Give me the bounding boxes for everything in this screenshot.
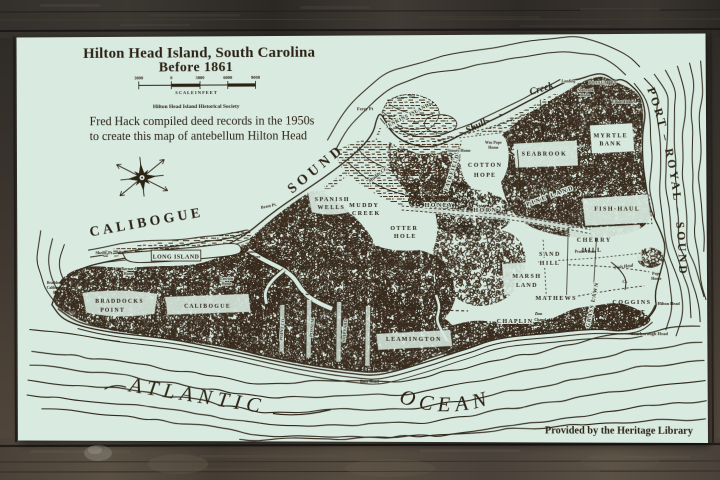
svg-text:Scarborough Head: Scarborough Head: [631, 331, 668, 336]
svg-text:O T T E R: O T T E R: [390, 226, 417, 232]
svg-text:Ferry Pt: Ferry Pt: [357, 106, 374, 111]
svg-text:Stoney Home: Stoney Home: [448, 148, 471, 153]
svg-text:S E A B R O O K: S E A B R O O K: [522, 151, 566, 157]
svg-text:F I S H - H A U L: F I S H - H A U L: [594, 206, 639, 212]
svg-text:6000: 6000: [223, 75, 233, 80]
svg-text:H O P E: H O P E: [474, 173, 495, 179]
svg-text:B R A D D O C K S: B R A D D O C K S: [95, 299, 142, 305]
svg-text:S P A N I S H: S P A N I S H: [315, 197, 349, 203]
svg-text:C O T T O N: C O T T O N: [468, 163, 502, 169]
svg-text:Fred Hack compiled deed record: Fred Hack compiled deed records in the 1…: [90, 113, 315, 128]
svg-text:S A N D: S A N D: [539, 252, 559, 258]
svg-text:Landing: Landing: [164, 244, 181, 249]
svg-text:M A T H E W S: M A T H E W S: [535, 296, 576, 302]
svg-text:M U D D Y: M U D D Y: [349, 203, 378, 209]
svg-text:3000: 3000: [134, 75, 144, 80]
svg-text:to create this map of antebell: to create this map of antebellum Hilton …: [90, 128, 307, 143]
svg-text:C H A P L I N: C H A P L I N: [497, 319, 533, 325]
svg-text:9000: 9000: [251, 75, 261, 80]
svg-text:P O I N T: P O I N T: [620, 310, 645, 316]
svg-text:Home: Home: [488, 145, 499, 150]
svg-text:C A L I B O G U E: C A L I B O G U E: [184, 304, 230, 310]
svg-text:Bass Head: Bass Head: [360, 379, 379, 384]
svg-text:LONG ISLAND: LONG ISLAND: [153, 255, 200, 261]
svg-text:H O R N: H O R N: [473, 208, 496, 214]
svg-text:H O N E Y: H O N E Y: [425, 203, 454, 209]
svg-text:Landing: Landing: [560, 78, 575, 83]
svg-text:S C A L E I N F E E T: S C A L E I N F E E T: [175, 90, 217, 95]
svg-text:Calibogue: Calibogue: [47, 286, 64, 290]
svg-text:Shelly Pt: Shelly Pt: [95, 250, 112, 255]
svg-text:Praise House: Praise House: [575, 250, 597, 254]
svg-text:Zion: Zion: [535, 312, 544, 316]
svg-text:Hilton Head Island Historical: Hilton Head Island Historical Society: [153, 104, 240, 110]
svg-text:Home: Home: [580, 92, 591, 97]
svg-text:L A N D: L A N D: [516, 283, 537, 289]
svg-text:H I L L: H I L L: [540, 261, 559, 267]
svg-text:M Y R T L E: M Y R T L E: [594, 133, 627, 139]
svg-text:W E L L S: W E L L S: [317, 205, 344, 211]
svg-text:L E A M I N G T O N: L E A M I N G T O N: [386, 337, 441, 343]
svg-text:C R E E K: C R E E K: [352, 211, 380, 217]
svg-text:Elliott Home: Elliott Home: [612, 99, 634, 104]
svg-text:C O G G I N S: C O G G I N S: [612, 300, 650, 306]
svg-text:Before 1861: Before 1861: [159, 59, 233, 75]
svg-text:Provided by the Heritage Libra: Provided by the Heritage Library: [545, 425, 693, 437]
svg-text:Braddock: Braddock: [47, 281, 64, 285]
svg-text:H O L E: H O L E: [394, 234, 416, 240]
svg-text:Pope: Pope: [252, 254, 261, 259]
svg-text:Hilton Head: Hilton Head: [657, 301, 680, 306]
svg-text:Home: Home: [124, 271, 134, 276]
svg-text:Chapel of Ease: Chapel of Ease: [534, 318, 559, 322]
svg-text:M A R S H: M A R S H: [512, 274, 540, 280]
svg-text:Cr.: Cr.: [622, 279, 627, 284]
svg-text:C H E R R Y: C H E R R Y: [577, 238, 611, 244]
svg-text:B A N K: B A N K: [599, 141, 621, 147]
svg-text:POSSUM PT: POSSUM PT: [588, 80, 617, 85]
svg-text:Home: Home: [651, 276, 662, 281]
svg-text:3000: 3000: [196, 75, 206, 80]
svg-text:P O I N T: P O I N T: [100, 308, 124, 314]
svg-text:Home: Home: [222, 281, 232, 286]
